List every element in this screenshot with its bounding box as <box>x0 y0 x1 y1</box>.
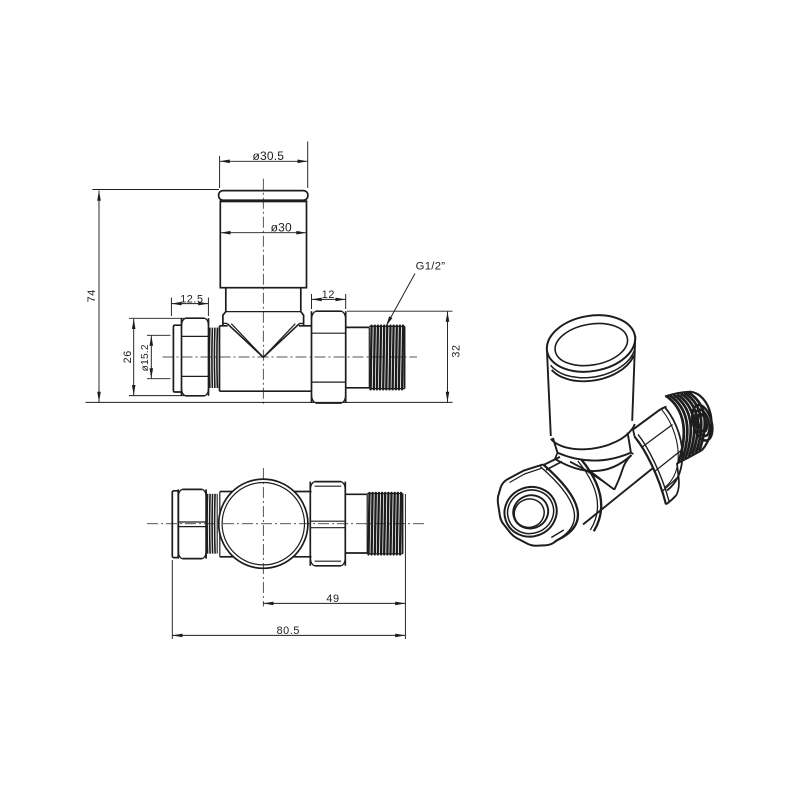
svg-text:ø30: ø30 <box>271 220 292 234</box>
svg-text:26: 26 <box>122 350 134 363</box>
svg-text:74: 74 <box>86 289 98 302</box>
svg-text:G1/2”: G1/2” <box>416 261 446 273</box>
svg-text:12.5: 12.5 <box>180 293 203 305</box>
svg-text:80.5: 80.5 <box>277 625 300 637</box>
svg-text:ø15.2: ø15.2 <box>140 344 151 371</box>
svg-text:32: 32 <box>451 344 463 357</box>
svg-text:49: 49 <box>326 593 339 605</box>
svg-text:ø30.5: ø30.5 <box>252 149 284 163</box>
svg-text:12: 12 <box>322 289 335 301</box>
